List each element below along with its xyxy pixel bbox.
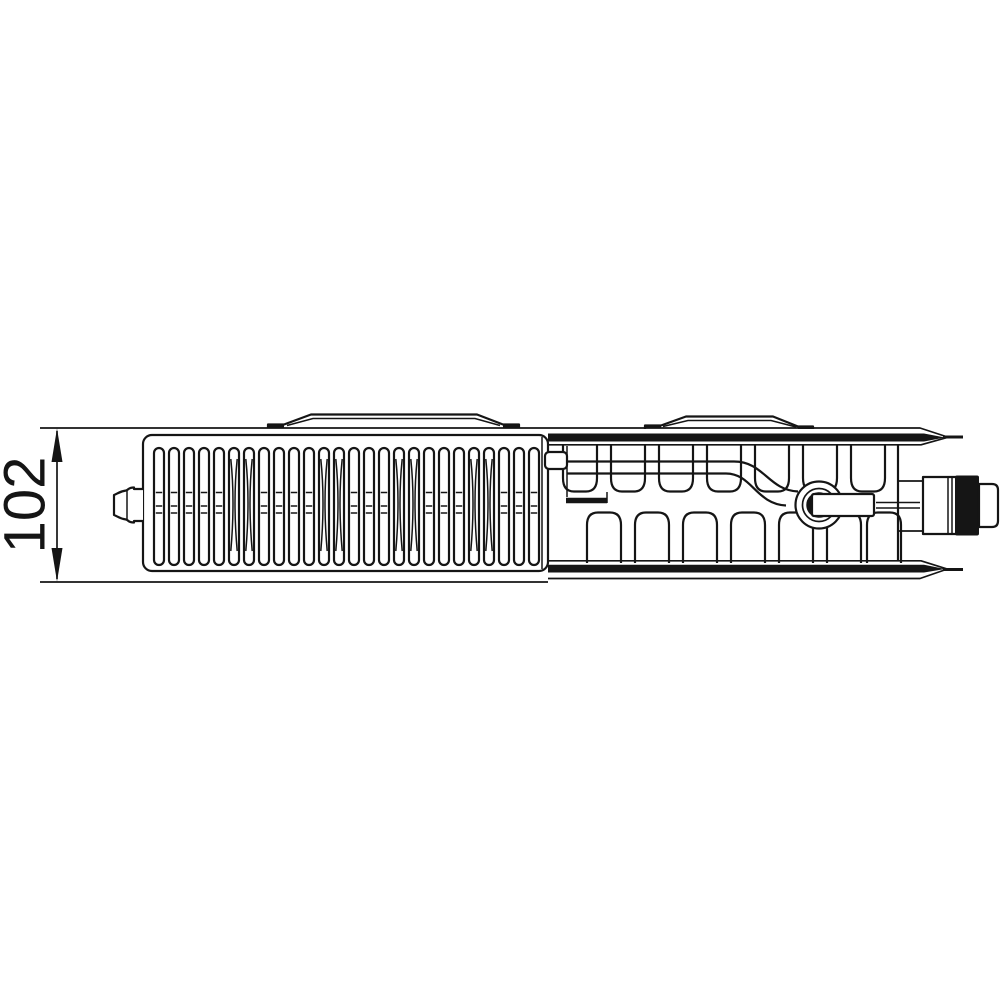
upper-fin-loop	[707, 446, 741, 492]
convector-fins-lower-row	[587, 513, 901, 564]
valve-knurled-ring	[955, 476, 979, 536]
bracket-strap	[645, 417, 813, 430]
mounting-bracket-left	[268, 415, 519, 429]
bracket-strap-inner-line	[663, 421, 796, 428]
pipe-upper-line	[567, 462, 798, 492]
bracket-strap-inner-line	[287, 419, 500, 426]
lower-fin-loop	[635, 513, 669, 564]
lower-fin-loop	[683, 513, 717, 564]
radiator-technical-drawing: 102	[0, 0, 1000, 1000]
lower-fin-loop	[867, 513, 901, 564]
radiator-cutaway-section	[545, 434, 963, 579]
dimension-label: 102	[0, 457, 57, 554]
upper-fin-loop	[851, 446, 885, 492]
lower-fin-loop	[731, 513, 765, 564]
radiator-grille-section	[114, 435, 548, 571]
blanking-plug	[114, 488, 143, 523]
diagram-canvas: 102	[0, 0, 1000, 1000]
top-panel-band	[548, 434, 945, 442]
upper-fin-loop	[563, 446, 597, 492]
valve-end-cap	[979, 484, 998, 527]
lower-fin-loop	[587, 513, 621, 564]
valve-tailpiece	[812, 494, 874, 516]
mounting-bracket-right	[645, 417, 813, 430]
fitting-tab	[545, 452, 567, 469]
upper-fin-loop	[611, 446, 645, 492]
valve-connection	[898, 476, 998, 536]
bottom-panel-band	[548, 565, 945, 573]
upper-fin-loop	[755, 446, 789, 492]
convector-fins-upper-row	[563, 446, 885, 492]
upper-fin-loop	[659, 446, 693, 492]
